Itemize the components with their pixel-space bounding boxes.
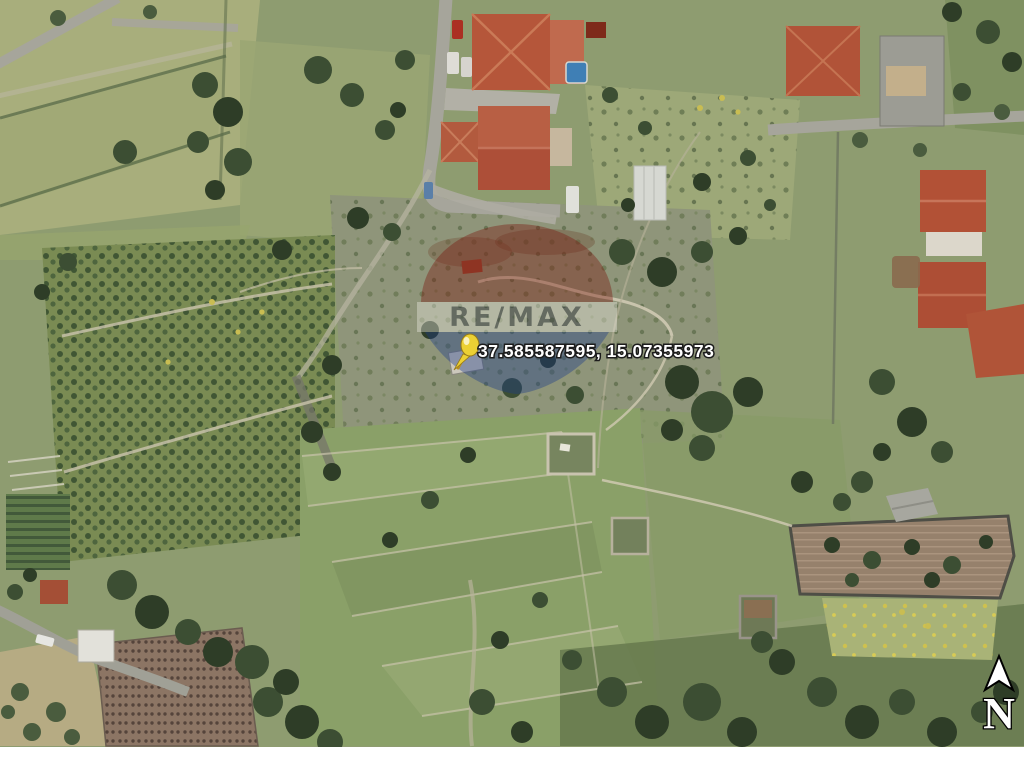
car-red xyxy=(452,20,463,39)
walled-ruin xyxy=(548,434,594,474)
small-red-roof-house xyxy=(40,580,68,604)
remax-watermark-text: RE/MAX xyxy=(449,302,585,333)
coordinates-label: 37.585587595, 15.07355973 xyxy=(478,341,714,361)
walled-ruin xyxy=(612,518,648,554)
van-white xyxy=(566,186,579,213)
satellite-photo: RE/MAX 37.585587595, 15.07355973 N xyxy=(0,0,1024,747)
north-label: N xyxy=(983,689,1015,738)
swimming-pool xyxy=(566,62,587,83)
vegetable-garden xyxy=(6,494,70,570)
white-building xyxy=(78,630,114,662)
walled-orchard xyxy=(790,516,1014,598)
bottom-margin xyxy=(0,747,1024,768)
satellite-map-view: RE/MAX 37.585587595, 15.07355973 N xyxy=(0,0,1024,768)
car-blue xyxy=(424,182,433,199)
car-white xyxy=(447,52,459,74)
car-white xyxy=(461,57,472,77)
greenhouse xyxy=(634,166,666,220)
